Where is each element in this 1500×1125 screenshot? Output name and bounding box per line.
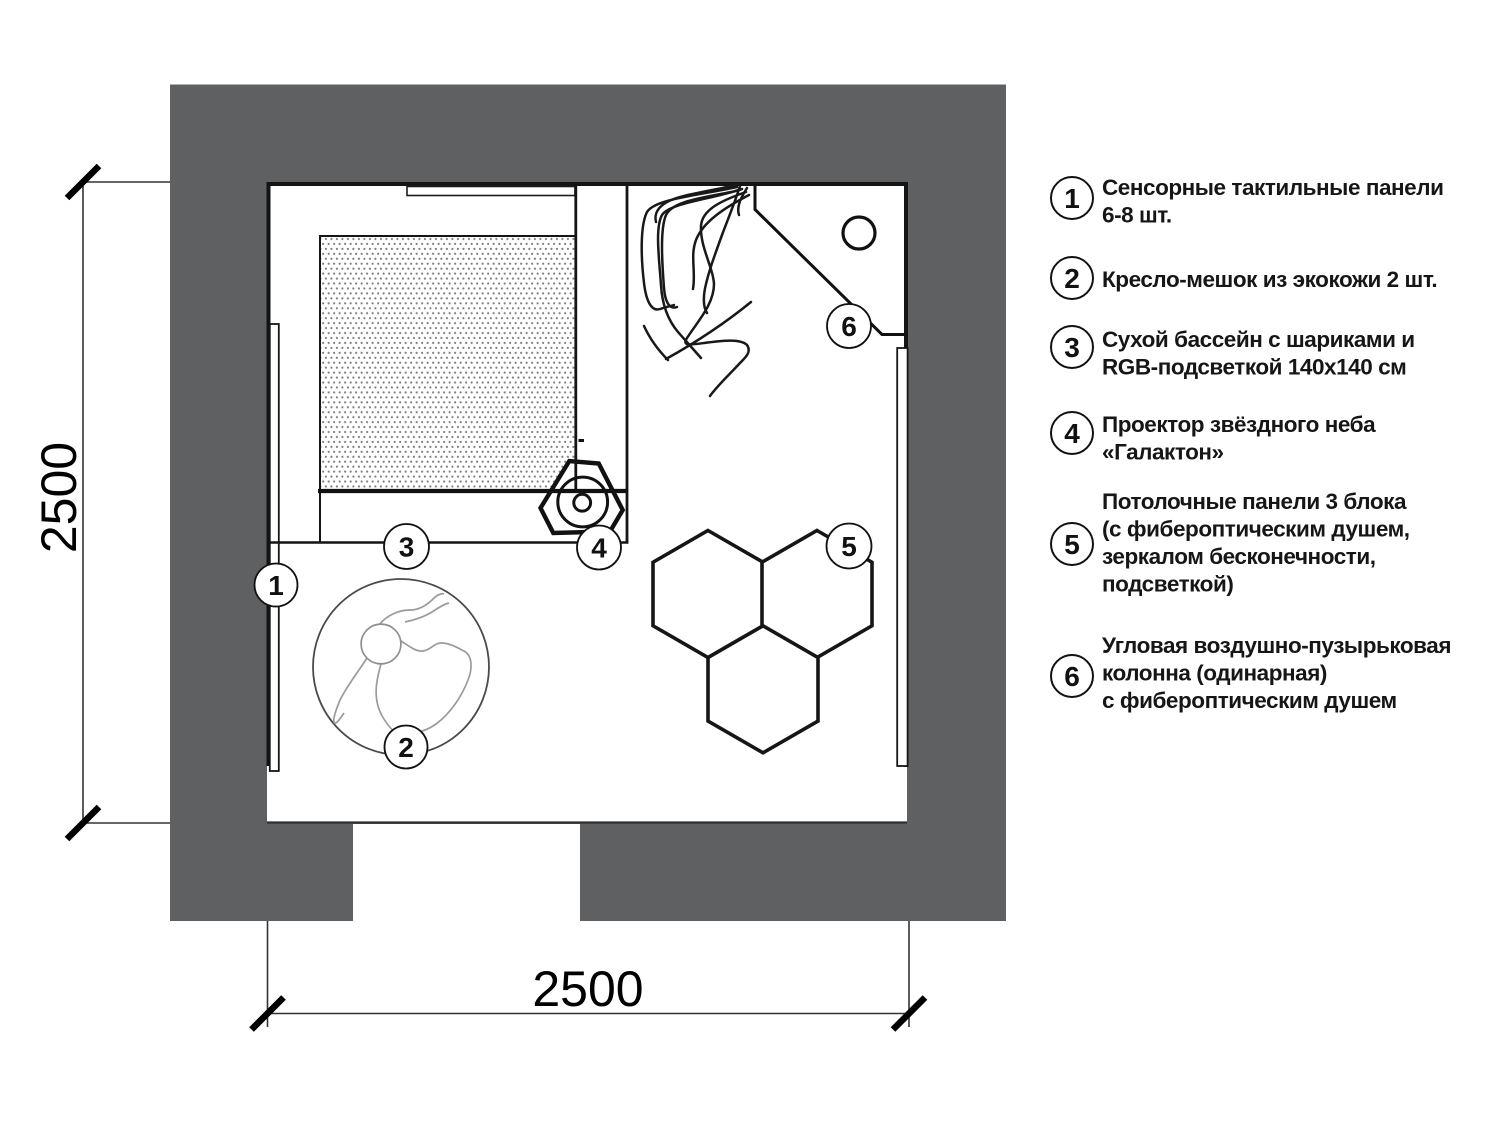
svg-text:6: 6 bbox=[1064, 661, 1080, 692]
svg-text:«Галактон»: «Галактон» bbox=[1102, 440, 1224, 465]
svg-text:зеркалом бесконечности,: зеркалом бесконечности, bbox=[1102, 544, 1376, 569]
svg-text:Потолочные панели 3 блока: Потолочные панели 3 блока bbox=[1102, 489, 1407, 514]
svg-text:2500: 2500 bbox=[31, 442, 87, 553]
svg-text:4: 4 bbox=[591, 533, 607, 564]
svg-text:Проектор звёздного неба: Проектор звёздного неба bbox=[1102, 412, 1376, 437]
svg-text:2: 2 bbox=[1064, 263, 1080, 294]
svg-text:RGB-подсветкой 140х140 см: RGB-подсветкой 140х140 см bbox=[1102, 355, 1406, 380]
svg-text:5: 5 bbox=[841, 531, 857, 562]
svg-text:6-8 шт.: 6-8 шт. bbox=[1102, 203, 1172, 228]
svg-text:2500: 2500 bbox=[532, 961, 643, 1017]
svg-text:подсветкой): подсветкой) bbox=[1102, 572, 1233, 597]
svg-text:колонна (одинарная): колонна (одинарная) bbox=[1102, 661, 1327, 686]
svg-text:3: 3 bbox=[1064, 332, 1080, 363]
svg-text:6: 6 bbox=[841, 311, 857, 342]
svg-text:Кресло-мешок из экокожи 2 шт.: Кресло-мешок из экокожи 2 шт. bbox=[1102, 267, 1437, 292]
svg-text:2: 2 bbox=[398, 732, 414, 763]
svg-text:Сухой бассейн с шариками и: Сухой бассейн с шариками и bbox=[1102, 327, 1415, 352]
svg-text:Угловая воздушно-пузырьковая: Угловая воздушно-пузырьковая bbox=[1102, 633, 1451, 658]
svg-text:5: 5 bbox=[1064, 529, 1080, 560]
svg-text:1: 1 bbox=[268, 570, 284, 601]
svg-text:Сенсорные тактильные панели: Сенсорные тактильные панели bbox=[1102, 175, 1443, 200]
svg-text:3: 3 bbox=[399, 532, 415, 563]
svg-text:4: 4 bbox=[1064, 418, 1080, 449]
svg-text:1: 1 bbox=[1064, 183, 1080, 214]
svg-text:с фибероптическим душем: с фибероптическим душем bbox=[1102, 688, 1397, 713]
svg-text:(с фибероптическим душем,: (с фибероптическим душем, bbox=[1102, 517, 1410, 542]
